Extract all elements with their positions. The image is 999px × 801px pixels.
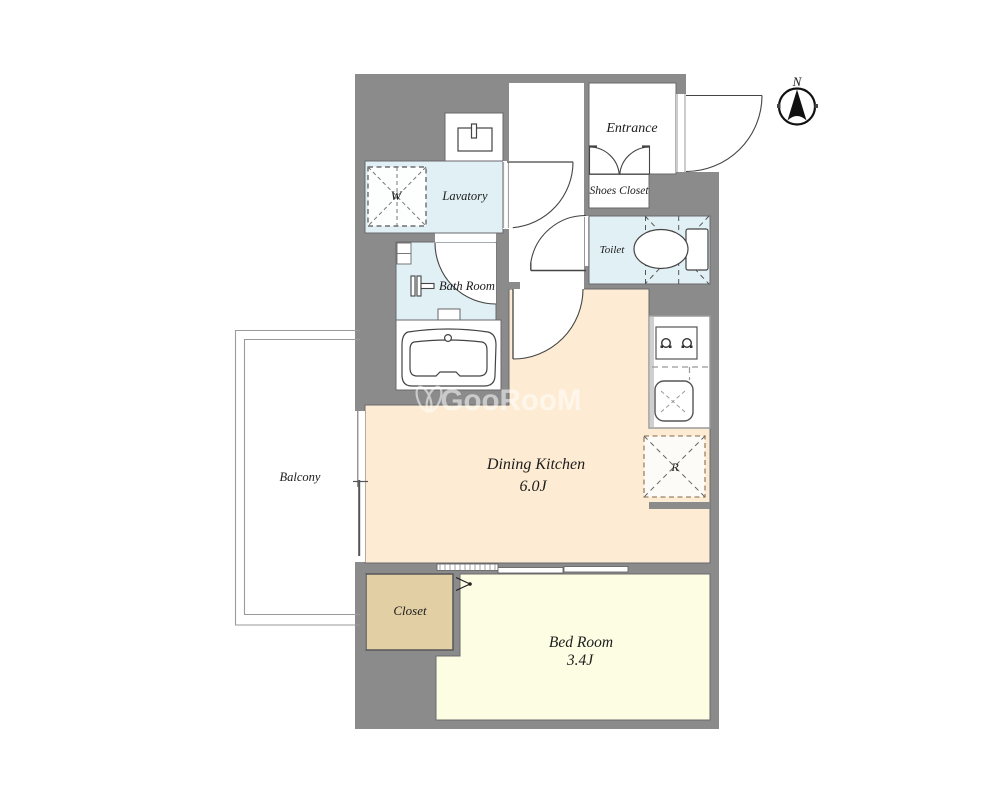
svg-text:6.0J: 6.0J [519, 478, 547, 495]
svg-text:3.4J: 3.4J [566, 652, 594, 669]
svg-text:R: R [670, 460, 679, 474]
svg-text:W: W [391, 188, 403, 203]
svg-text:Bath Room: Bath Room [439, 279, 495, 293]
svg-text:Toilet: Toilet [600, 244, 626, 256]
svg-text:Shoes Closet: Shoes Closet [589, 185, 649, 197]
svg-text:Bed Room: Bed Room [549, 634, 613, 651]
svg-text:Entrance: Entrance [605, 121, 657, 136]
svg-text:N: N [792, 74, 803, 89]
svg-text:Lavatory: Lavatory [441, 189, 488, 203]
svg-text:GooRooM: GooRooM [441, 384, 582, 417]
svg-text:Balcony: Balcony [280, 470, 321, 484]
svg-text:Dining Kitchen: Dining Kitchen [486, 456, 585, 473]
svg-text:Closet: Closet [393, 603, 427, 618]
